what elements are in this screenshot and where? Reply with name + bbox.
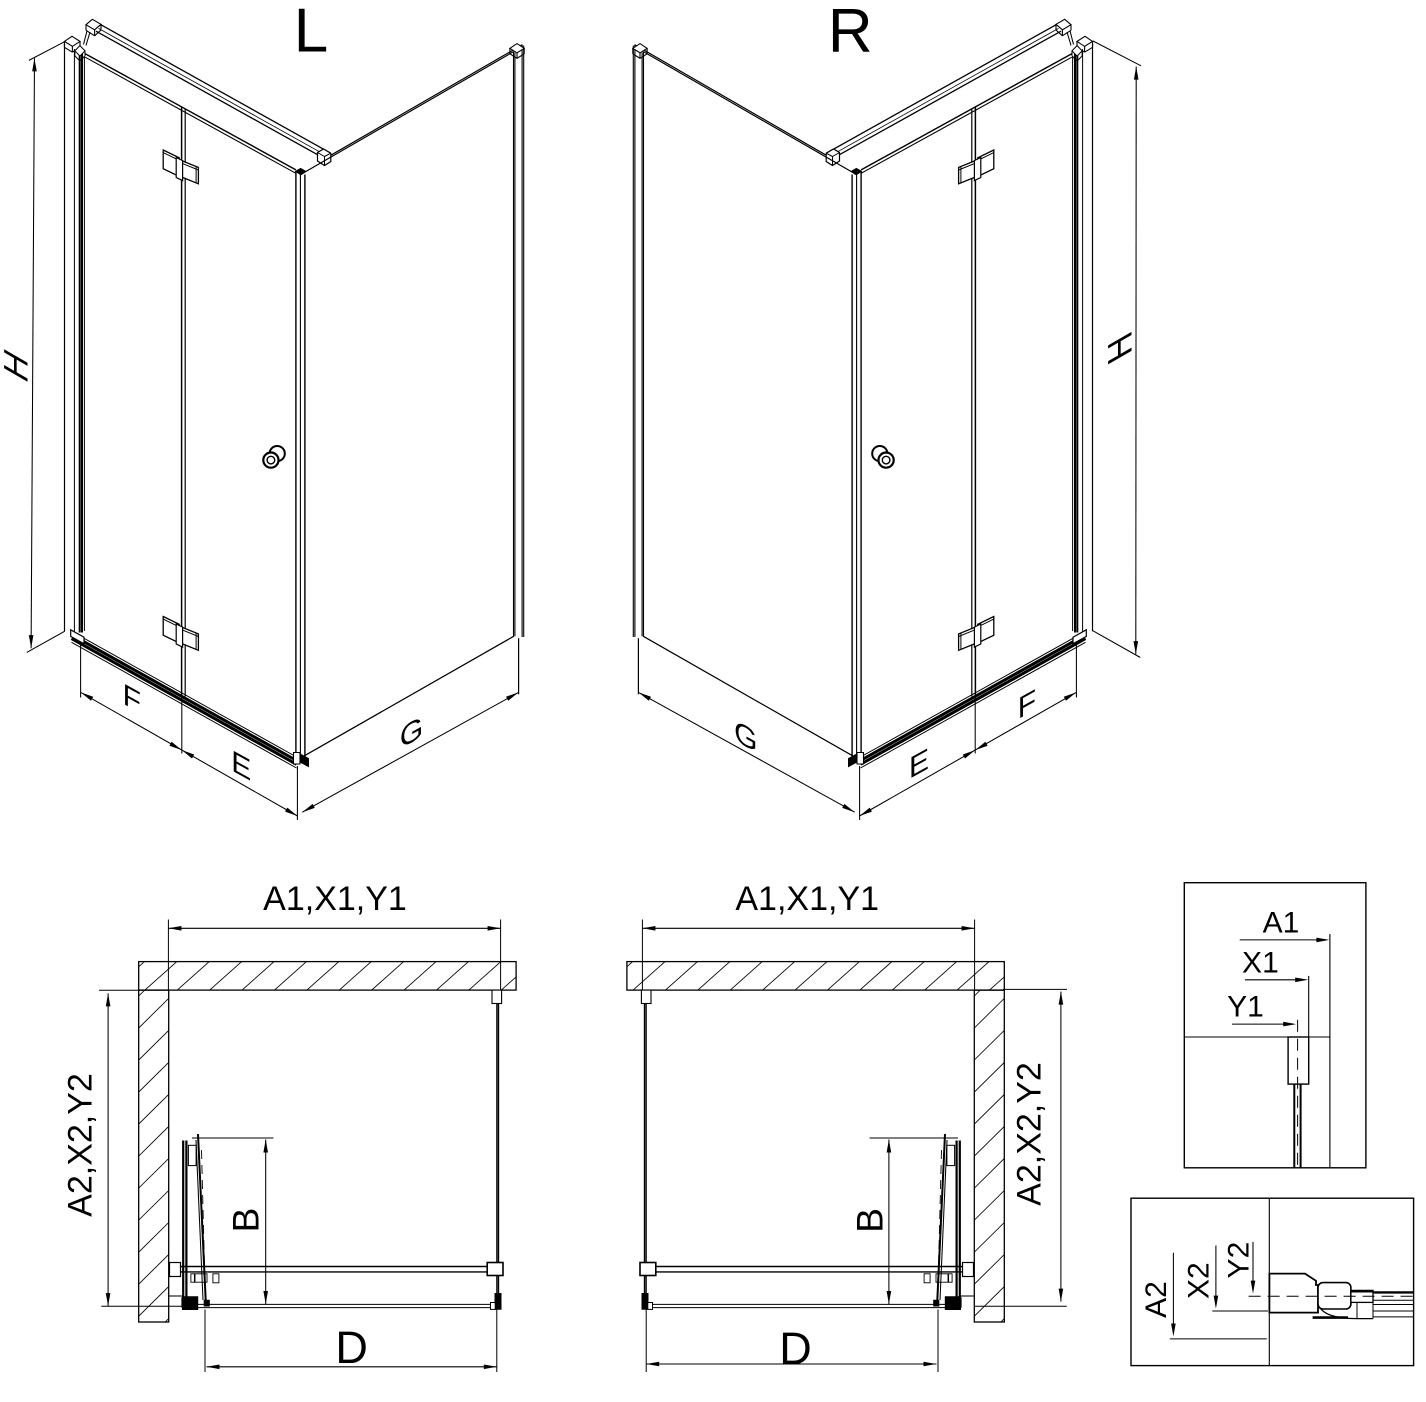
svg-text:B: B xyxy=(226,1208,267,1233)
svg-text:X1: X1 xyxy=(1242,947,1279,980)
svg-text:R: R xyxy=(828,0,873,66)
svg-text:A2: A2 xyxy=(1140,1281,1173,1318)
svg-text:Y1: Y1 xyxy=(1227,990,1264,1023)
svg-text:L: L xyxy=(294,0,328,66)
svg-text:A1,X1,Y1: A1,X1,Y1 xyxy=(263,880,407,918)
svg-text:B: B xyxy=(849,1208,890,1233)
svg-text:X2: X2 xyxy=(1182,1262,1215,1299)
svg-text:Y2: Y2 xyxy=(1223,1242,1256,1279)
svg-text:D: D xyxy=(779,1323,812,1374)
svg-text:D: D xyxy=(335,1322,368,1373)
svg-text:A1,X1,Y1: A1,X1,Y1 xyxy=(735,880,879,918)
svg-text:A1: A1 xyxy=(1263,907,1300,940)
svg-text:A2,X2,Y2: A2,X2,Y2 xyxy=(1011,1062,1049,1206)
svg-text:A2,X2,Y2: A2,X2,Y2 xyxy=(62,1073,100,1217)
